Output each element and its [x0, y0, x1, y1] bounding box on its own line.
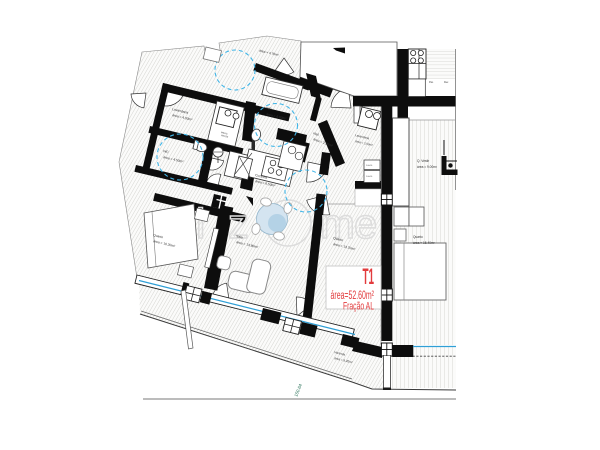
svg-text:1.6x2.0: 1.6x2.0	[366, 176, 372, 178]
svg-text:1.6x2.0: 1.6x2.0	[366, 165, 372, 167]
svg-text:T1: T1	[362, 265, 374, 290]
svg-text:Pav.: Pav.	[429, 81, 434, 84]
svg-text:i: i	[196, 200, 205, 247]
svg-text:Rev.: Rev.	[444, 81, 449, 84]
svg-text:Quarto: Quarto	[413, 235, 423, 239]
svg-text:e: e	[354, 200, 377, 247]
svg-text:área = 15.40m²: área = 15.40m²	[413, 241, 435, 245]
svg-text:Fração AL: Fração AL	[343, 300, 374, 312]
svg-text:Q. Vestir: Q. Vestir	[417, 159, 430, 163]
svg-text:área = 9.00m²: área = 9.00m²	[417, 165, 437, 169]
